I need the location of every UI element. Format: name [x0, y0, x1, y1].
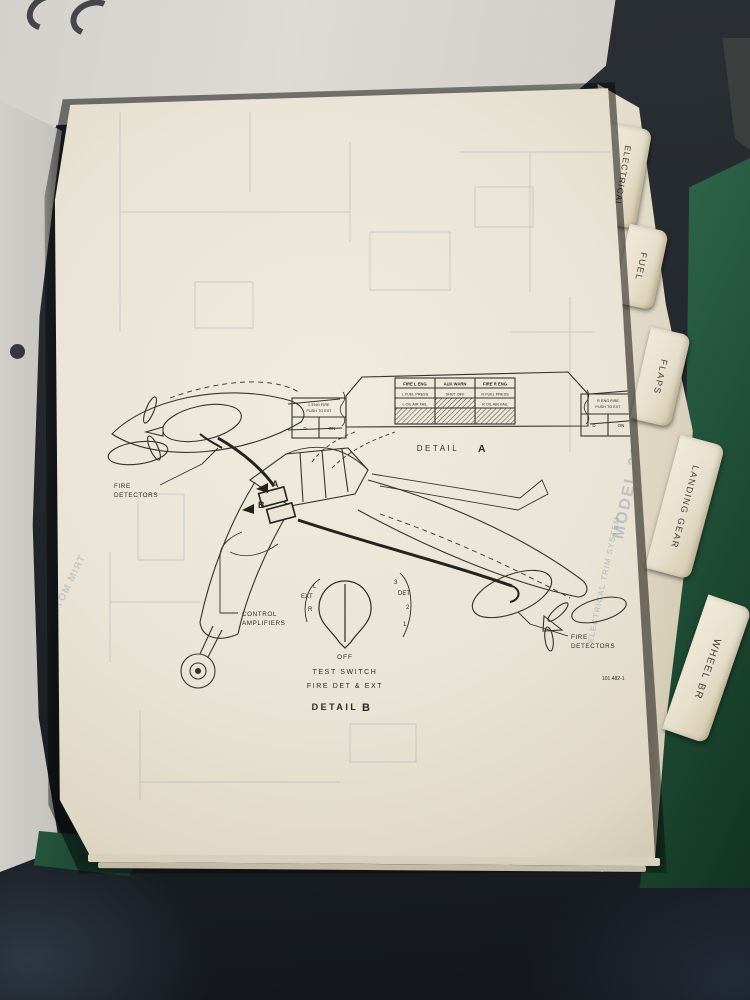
switch-cell: ON [618, 423, 625, 428]
annunciator-headers: FIRE L ENG AUX WARN FIRE R ENG [403, 382, 507, 387]
control-amplifiers-label: CONTROL [242, 611, 277, 618]
switch-off-label: OFF [337, 654, 353, 661]
tab-flaps-label: FLAPS [652, 358, 670, 395]
detail-b-letter: B [362, 702, 370, 714]
switch-title: L ENG FIRE [309, 403, 330, 407]
annunciator-cell: L OIL AIR FAIL [402, 403, 427, 407]
tab-wheel-brakes-label: WHEEL BR [691, 637, 722, 701]
fire-detectors-right-label: FIRE [571, 634, 588, 641]
switch-pos: R [308, 607, 313, 613]
annunciator-cell: AUX WARN [444, 382, 467, 387]
detail-b-positions: L EXT R 3 DET 2 1 [301, 580, 410, 628]
fire-detectors-left-label: DETECTORS [114, 492, 158, 499]
callout-b-arrow-icon [242, 504, 254, 514]
annunciator-cell: R FUEL PRESS [481, 393, 509, 397]
control-amplifiers-label: AMPLIFIERS [242, 620, 285, 627]
fire-detectors-right-label: DETECTORS [571, 643, 615, 650]
switch-pos: 2 [406, 605, 410, 611]
annunciator-cell: FIRE R ENG [483, 382, 507, 387]
detail-a-caption: DETAIL [417, 444, 459, 453]
fire-system-lines [200, 434, 519, 602]
detail-b-caption: DETAIL [312, 702, 359, 712]
callout-a: A [272, 479, 279, 489]
annunciator-cell: FIRE L ENG [403, 382, 426, 387]
switch-pos: L [313, 584, 317, 590]
annunciator-cell: SHUT OFF [446, 393, 466, 397]
switch-title: PUSH TO EXT [595, 405, 621, 409]
switch-pos: 3 [394, 580, 398, 586]
detail-a-letter: A [478, 443, 486, 455]
switch-pos: 1 [403, 622, 407, 628]
switch-cell: ON [329, 426, 336, 431]
background-paper-corner [700, 38, 750, 150]
manual-page: MODEL 20 ELECTRICAL TRIM SYSTEM TRIM MOT… [50, 82, 662, 870]
fire-det-ext-label: FIRE DET & EXT [307, 683, 383, 690]
aircraft-outline [107, 382, 629, 688]
callout-b: B [258, 500, 265, 510]
fire-detection-diagram: FIRE L ENG AUX WARN FIRE R ENG L FUEL PR… [50, 82, 662, 870]
tab-fuel-label: FUEL [633, 252, 649, 282]
annunciator-cell: R OIL AIR FAIL [482, 403, 508, 407]
switch-pos: DET [398, 591, 410, 597]
punch-hole [10, 344, 25, 359]
test-switch-label: TEST SWITCH [313, 669, 378, 676]
tab-landing-gear-label: LANDING GEAR [669, 464, 701, 550]
switch-title: PUSH TO EXT [306, 409, 332, 413]
photo-of-open-binder: ELECTRICAL FUEL FLAPS LANDING GEAR WHEEL… [0, 0, 750, 1000]
switch-cell: D [303, 426, 307, 431]
switch-title: R ENG FIRE [597, 399, 619, 403]
switch-pos: EXT [301, 594, 313, 600]
ghost-schematic-lines [110, 112, 610, 800]
fire-detectors-left-label: FIRE [114, 483, 131, 490]
figure-number: 101 482-1 [602, 676, 625, 682]
diagram-labels: FIRE DETECTORS FIRE DETECTORS CONTROL AM… [114, 448, 615, 650]
annunciator-cell: L FUEL PRESS [402, 393, 429, 397]
